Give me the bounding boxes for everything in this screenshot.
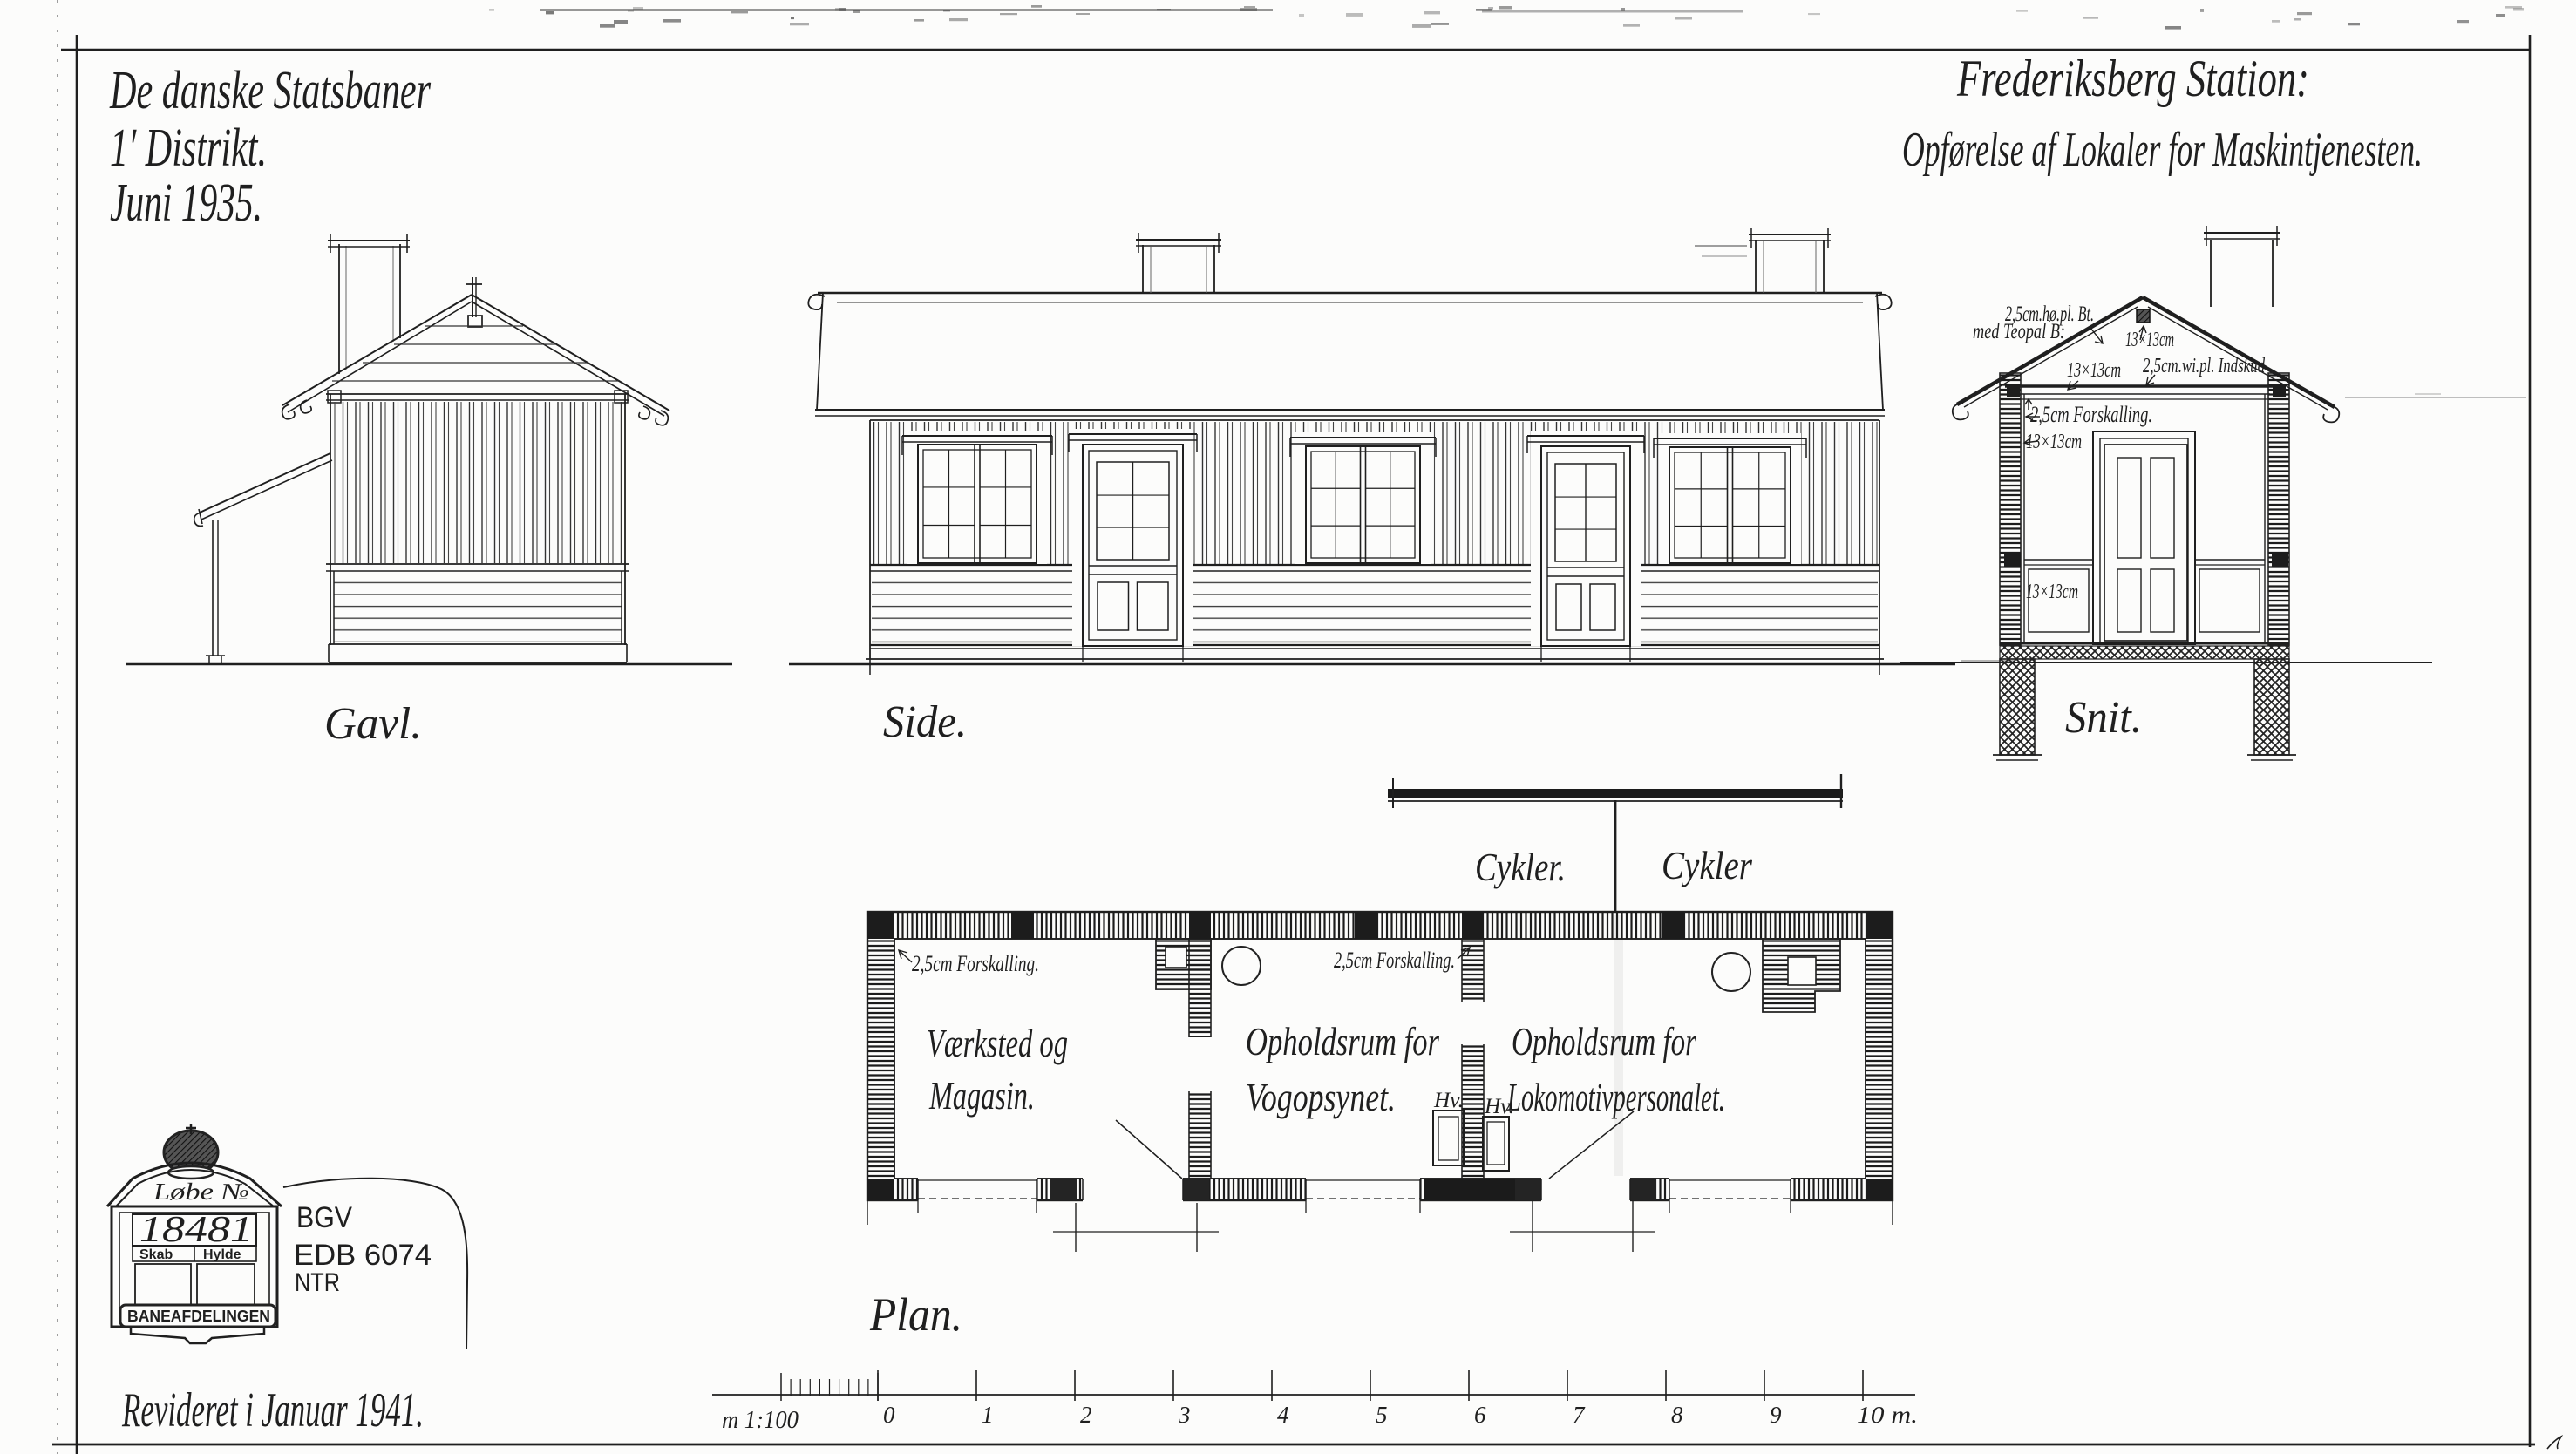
svg-text:Løbe №: Løbe № [153,1179,249,1205]
svg-text:2: 2 [1080,1402,1092,1428]
svg-text:Plan.: Plan. [869,1288,962,1341]
svg-text:1: 1 [982,1402,994,1428]
svg-text:m 1:100: m 1:100 [722,1407,799,1434]
svg-text:13×13cm: 13×13cm [2026,581,2078,603]
svg-text:Gavl.: Gavl. [324,699,422,749]
svg-text:Cykler.: Cykler. [1475,845,1566,889]
svg-text:Opførelse af Lokaler for Maski: Opførelse af Lokaler for Maskintjenesten… [1902,123,2423,177]
svg-text:Lokomotivpersonalet.: Lokomotivpersonalet. [1506,1075,1725,1119]
svg-text:NTR: NTR [295,1268,340,1297]
svg-text:Magasin.: Magasin. [928,1073,1035,1118]
svg-text:Juni 1935.: Juni 1935. [110,173,262,233]
svg-text:Frederiksberg Station:: Frederiksberg Station: [1956,50,2309,107]
svg-text:1′ Distrikt.: 1′ Distrikt. [110,119,267,178]
svg-text:9: 9 [1770,1402,1782,1428]
svg-text:2,5cm Forskalling.: 2,5cm Forskalling. [2030,402,2152,427]
svg-text:8: 8 [1671,1402,1683,1428]
svg-text:0: 0 [883,1402,895,1428]
svg-text:Revideret i Januar 1941.: Revideret i Januar 1941. [121,1383,424,1437]
svg-text:5: 5 [1376,1402,1388,1428]
svg-text:Vogopsynet.: Vogopsynet. [1246,1075,1396,1119]
svg-text:med Teopal B:: med Teopal B: [1973,320,2065,343]
svg-text:2,5cm Forskalling.: 2,5cm Forskalling. [912,951,1039,976]
svg-text:Opholdsrum for: Opholdsrum for [1246,1019,1440,1063]
svg-text:Side.: Side. [883,697,967,747]
svg-text:13×13cm: 13×13cm [2125,329,2174,351]
svg-text:Hylde: Hylde [203,1247,241,1262]
svg-text:EDB 6074: EDB 6074 [294,1239,432,1272]
svg-text:Cykler: Cykler [1662,843,1753,887]
svg-text:6: 6 [1474,1402,1486,1428]
svg-text:2,5cm Forskalling.: 2,5cm Forskalling. [1334,948,1455,973]
svg-text:7: 7 [1573,1402,1586,1428]
svg-text:18481: 18481 [139,1210,253,1250]
svg-text:10 m.: 10 m. [1857,1402,1918,1428]
svg-text:Hv.: Hv. [1433,1089,1464,1112]
svg-text:2,5cm.wi.pl. Indskud: 2,5cm.wi.pl. Indskud [2143,355,2266,377]
svg-text:BANEAFDELINGEN: BANEAFDELINGEN [127,1308,270,1325]
svg-text:Værksted og: Værksted og [927,1021,1068,1065]
svg-text:13×13cm: 13×13cm [2067,359,2121,382]
svg-text:BGV: BGV [296,1201,352,1234]
svg-text:Snit.: Snit. [2065,693,2142,743]
svg-text:3: 3 [1178,1402,1191,1428]
svg-text:4: 4 [1277,1402,1289,1428]
svg-text:Skab: Skab [139,1247,173,1262]
svg-text:De danske Statsbaner: De danske Statsbaner [109,61,431,120]
svg-text:Opholdsrum for: Opholdsrum for [1512,1019,1697,1063]
